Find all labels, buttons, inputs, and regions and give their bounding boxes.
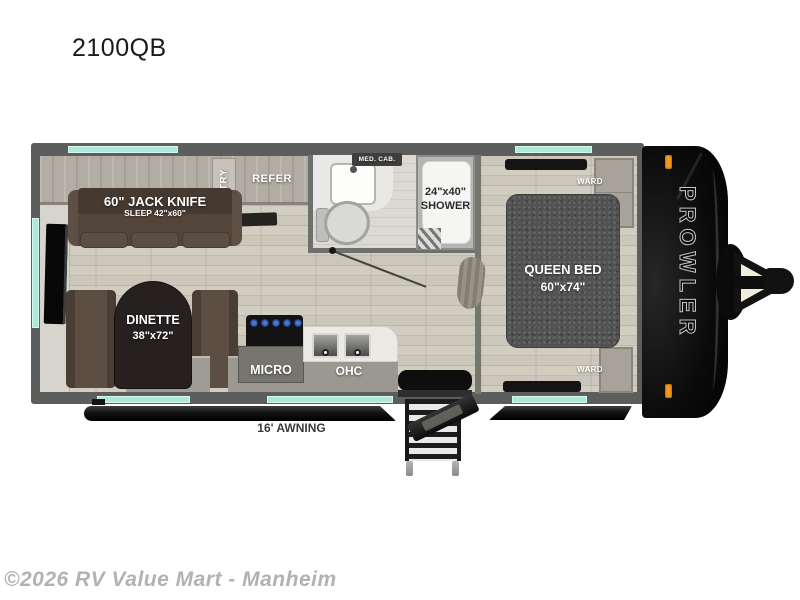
sofa-cushion bbox=[131, 232, 179, 248]
brand-logo: PROWLER bbox=[666, 186, 700, 386]
window-rear bbox=[32, 218, 39, 328]
faucet-dot bbox=[354, 349, 361, 356]
page-title: 2100QB bbox=[72, 34, 167, 63]
step-foot-right bbox=[452, 461, 459, 476]
floorplan-image: 2100QB PANTRY REFER 60" JACK KNIFE SLEEP… bbox=[0, 0, 800, 600]
sofa-cushion bbox=[182, 232, 230, 248]
window-bottom-right bbox=[512, 396, 587, 403]
stove-burners bbox=[250, 318, 302, 328]
entry-door-mat bbox=[398, 370, 472, 391]
step-foot-left bbox=[406, 461, 413, 476]
awning-roll-left bbox=[84, 406, 396, 421]
faucet-dot bbox=[322, 349, 329, 356]
burner bbox=[294, 319, 302, 327]
window-bottom-left bbox=[97, 396, 190, 403]
ward-bottom-label: WARD bbox=[566, 366, 614, 374]
burner bbox=[272, 319, 280, 327]
ward-top-label: WARD bbox=[566, 178, 614, 186]
hitch-coupler bbox=[764, 268, 794, 294]
dinette-bench-left bbox=[66, 290, 116, 388]
watermark: ©2026 RV Value Mart - Manheim bbox=[4, 568, 337, 592]
bed-shelf-top bbox=[505, 159, 587, 170]
entry-threshold bbox=[398, 390, 472, 397]
awning-roll-right bbox=[489, 406, 632, 420]
sofa-cushion bbox=[80, 232, 128, 248]
sofa-subtitle: SLEEP 42"x60" bbox=[78, 209, 232, 218]
bed-size: 60"x74" bbox=[506, 281, 620, 294]
wall-notch bbox=[92, 399, 105, 405]
window-top-right bbox=[515, 146, 592, 153]
dinette-title: DINETTE bbox=[114, 314, 192, 327]
tv bbox=[44, 224, 69, 325]
marker-light-icon bbox=[665, 155, 672, 169]
window-top-left bbox=[68, 146, 178, 153]
awning-label: 16' AWNING bbox=[234, 422, 349, 435]
refer-label: REFER bbox=[242, 174, 302, 186]
sofa-title: 60" JACK KNIFE bbox=[78, 195, 232, 209]
bed-title: QUEEN BED bbox=[506, 263, 620, 277]
shower-threshold-hatch bbox=[418, 228, 441, 249]
bath-faucet-dot bbox=[350, 166, 357, 173]
wardrobe-top-divider bbox=[596, 192, 632, 193]
dinette-size: 38"x72" bbox=[114, 331, 192, 343]
shower-label: SHOWER bbox=[416, 201, 475, 213]
shower-size: 24"x40" bbox=[416, 187, 475, 199]
micro-label: MICRO bbox=[238, 364, 304, 377]
window-bottom-middle bbox=[267, 396, 393, 403]
burner bbox=[283, 319, 291, 327]
marker-light-icon bbox=[665, 384, 672, 398]
burner bbox=[250, 319, 258, 327]
bath-door-hinge bbox=[329, 247, 336, 254]
burner bbox=[261, 319, 269, 327]
med-cab: MED. CAB. bbox=[352, 153, 402, 166]
ohc-right-label: OHC bbox=[306, 365, 392, 378]
bed-shelf-bottom bbox=[503, 381, 581, 392]
